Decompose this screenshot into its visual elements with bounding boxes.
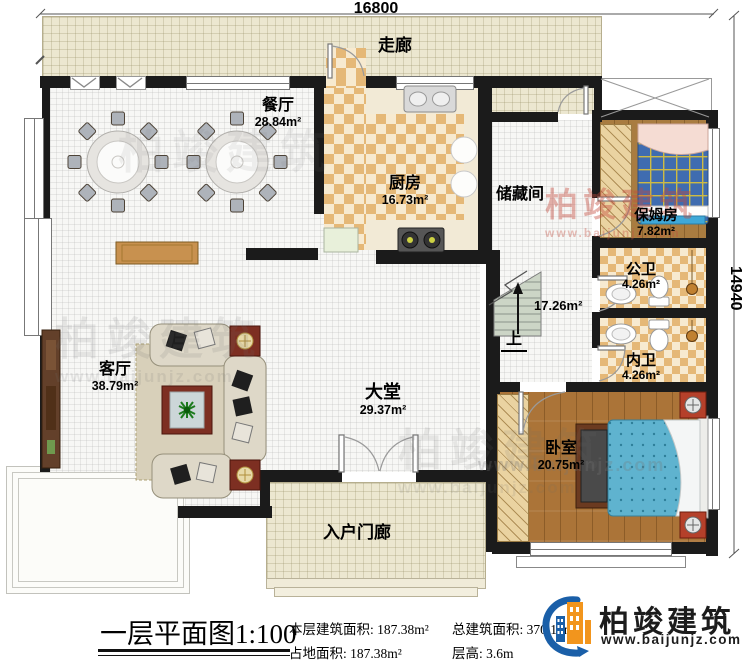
room-label-kitchen: 厨房 16.73m² (365, 175, 445, 208)
wall-kitchen-bottom-a (246, 248, 318, 260)
left-outer-window-lower (24, 218, 52, 336)
wall-nanny-top (592, 110, 716, 120)
room-label-public-bath: 公卫 4.26m² (606, 261, 676, 292)
room-label-storage: 储藏间 (482, 186, 558, 204)
wall-living-bottom (178, 506, 272, 518)
wall-kitchen-bottom-b (376, 250, 490, 264)
room-label-nanny: 保姆房 7.82m² (620, 208, 692, 238)
left-outer-window-upper (24, 118, 44, 220)
stairs-up-label: 上 (497, 331, 531, 352)
room-label-private-bath: 内卫 4.26m² (606, 352, 676, 383)
dimension-top: 16800 (344, 0, 408, 18)
porch-step-2 (274, 587, 478, 597)
wall-storage-top (480, 112, 558, 122)
title-underline-thick (98, 649, 290, 652)
floor-plan-page: 走廊 餐厅 28.84m² 厨房 16.73m² 储藏间 17.26m² 上 保… (0, 0, 750, 664)
living-floor-ext (185, 468, 262, 508)
wall-bath-divider (598, 308, 716, 318)
corridor-floor (42, 16, 602, 80)
room-label-living: 客厅 38.79m² (70, 361, 160, 394)
brand-url: www.baijunjz.com (601, 632, 742, 647)
stat-storey-height: 层高: 3.6m (452, 642, 514, 662)
kitchen-door-opening (326, 76, 366, 88)
corridor-ext-floor (488, 86, 594, 114)
private-bath-door-opening (592, 348, 600, 382)
wall-left-lower (40, 332, 50, 472)
room-label-corridor: 走廊 (348, 36, 442, 56)
drawing-title: 一层平面图1:100 (100, 612, 297, 651)
dining-top-window (186, 76, 290, 90)
room-label-hall: 大堂 29.37m² (338, 382, 428, 417)
bedroom-right-window (704, 418, 720, 510)
room-label-stair-area: 17.26m² (534, 299, 598, 314)
room-label-porch: 入户门廊 (296, 523, 418, 543)
title-underline-thin (98, 655, 290, 656)
room-label-bedroom: 卧室 20.75m² (524, 440, 598, 473)
stat-footprint-area: 占地面积: 187.38m² (289, 642, 402, 662)
brand-logo-icon (541, 594, 595, 658)
wall-porch-right (416, 470, 490, 482)
wall-kitchen-right (478, 82, 492, 262)
bedroom-bottom-window (530, 542, 672, 556)
bedroom-bay-sill (516, 556, 686, 568)
kitchen-checker-left (324, 84, 366, 250)
wall-porch-left (260, 470, 342, 482)
nanny-right-window (704, 128, 720, 218)
bedroom-door-opening (520, 382, 566, 392)
room-label-dining: 餐厅 28.84m² (238, 97, 318, 130)
left-terrace-steps (6, 466, 190, 594)
stat-floor-area: 本层建筑面积: 187.38m² (289, 618, 429, 638)
dining-vent-window-1 (70, 76, 100, 90)
kitchen-top-window (396, 76, 474, 90)
nanny-door-opening (592, 198, 600, 236)
wall-nanny-bottom (598, 238, 716, 248)
dimension-right: 14940 (726, 266, 744, 346)
dining-vent-window-2 (116, 76, 146, 90)
